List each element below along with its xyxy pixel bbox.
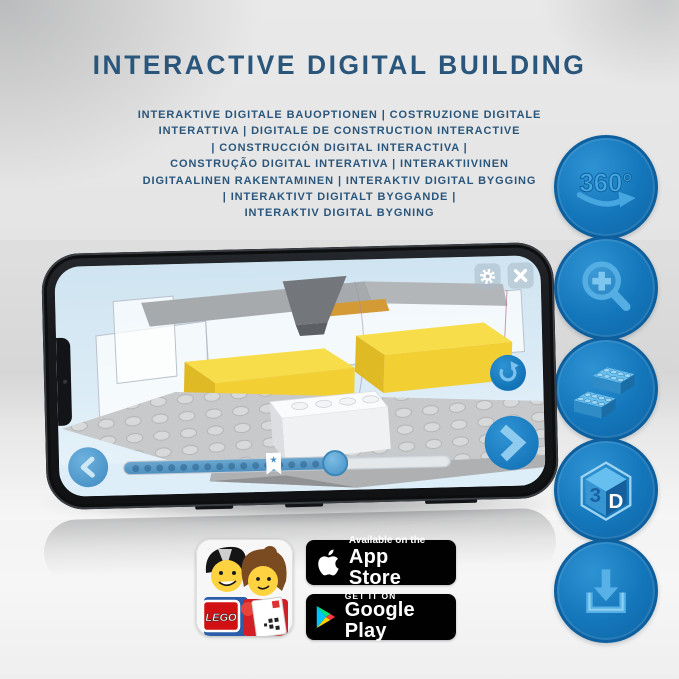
cube-d-label: D — [608, 490, 623, 513]
subtitle-line: DIGITAALINEN RAKENTAMINEN | INTERAKTIV D… — [114, 173, 565, 189]
zoom-in-magnifier-icon — [570, 252, 642, 324]
star-icon: ★ — [269, 453, 278, 475]
smartphone: ★ — [41, 242, 559, 510]
google-play-badge-text: GET IT ON Google Play — [345, 592, 446, 643]
close-icon — [511, 266, 529, 284]
feature-circle-bricks — [554, 337, 658, 441]
rotate-360-label: 360° — [579, 170, 632, 198]
google-play-name: Google Play — [345, 600, 446, 642]
app-store-badge[interactable]: Available on the App Store — [306, 540, 456, 585]
close-button[interactable] — [507, 262, 534, 289]
subtitle-line: | INTERAKTIVT DIGITALT BYGGANDE | — [114, 189, 565, 205]
next-step-button[interactable] — [484, 415, 539, 470]
lego-bricks-icon — [567, 350, 645, 428]
feature-circle-download — [554, 539, 658, 643]
subtitle-line: | CONSTRUCCIÓN DIGITAL INTERACTIVA | — [114, 140, 565, 156]
settings-button[interactable] — [474, 263, 501, 290]
subtitle-line: INTERATTIVA | DIGITALE DE CONSTRUCTION I… — [114, 123, 565, 139]
google-play-logo — [316, 604, 336, 630]
phone-notch — [56, 338, 72, 426]
rotate-icon — [495, 360, 522, 387]
page-title: INTERACTIVE DIGITAL BUILDING — [7, 50, 672, 81]
chevron-left-icon — [68, 447, 109, 488]
subtitle-line: CONSTRUÇÃO DIGITAL INTERATIVA | INTERAKT… — [114, 156, 565, 172]
feature-circle-zoom — [554, 236, 658, 340]
google-play-badge[interactable]: GET IT ON Google Play — [306, 594, 456, 640]
multilingual-subtitle: INTERAKTIVE DIGITALE BAUOPTIONEN | COSTR… — [114, 107, 565, 222]
subtitle-line: INTERAKTIVE DIGITALE BAUOPTIONEN | COSTR… — [114, 107, 565, 123]
lego-app-icon-art: LEGO — [196, 539, 293, 636]
3d-cube-icon: 3 D — [568, 452, 644, 528]
apple-logo — [316, 549, 340, 577]
feature-circle-360: 360° — [554, 135, 658, 239]
gear-icon — [477, 266, 497, 286]
star-bookmark-marker: ★ — [266, 452, 282, 474]
subtitle-line: INTERAKTIV DIGITAL BYGNING — [114, 205, 565, 221]
marketing-image: INTERACTIVE DIGITAL BUILDING INTERAKTIVE… — [0, 0, 679, 679]
phone-screen: ★ — [54, 255, 545, 497]
app-store-badge-text: Available on the App Store — [349, 536, 446, 589]
rotate-360-icon: 360° — [567, 148, 645, 226]
app-store-name: App Store — [349, 547, 446, 589]
slider-step-dots — [124, 460, 319, 472]
lego-app-icon[interactable]: LEGO — [196, 539, 293, 636]
lego-logo-text: LEGO — [205, 612, 237, 624]
cube-3-label: 3 — [590, 484, 601, 507]
chevron-right-icon — [484, 415, 539, 470]
camera-dot — [63, 380, 67, 384]
previous-step-button[interactable] — [68, 447, 109, 488]
download-icon — [570, 555, 642, 627]
